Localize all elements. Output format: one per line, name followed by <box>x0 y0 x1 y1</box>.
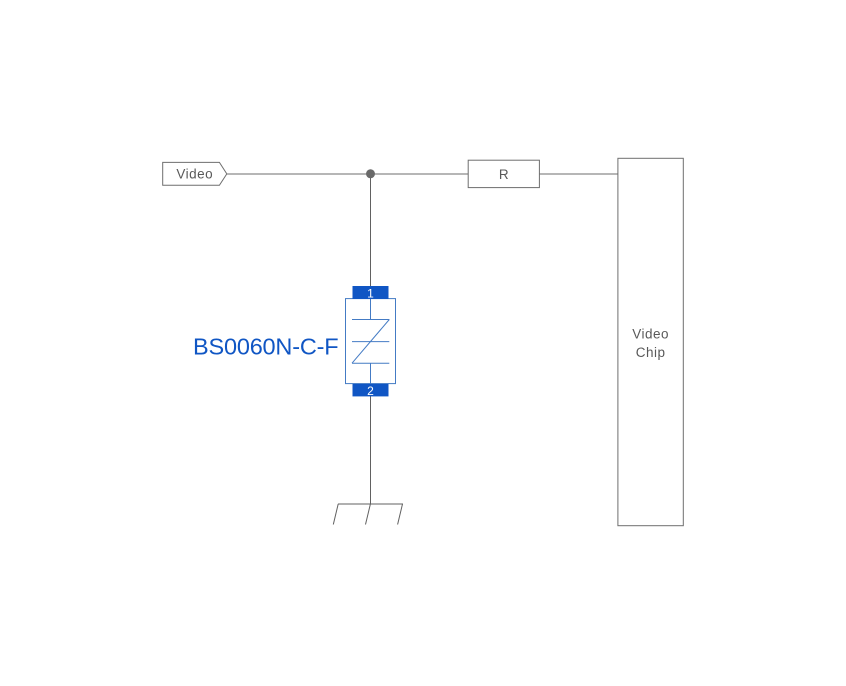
svg-text:2: 2 <box>367 384 374 398</box>
svg-text:Video: Video <box>176 167 213 182</box>
svg-text:1: 1 <box>367 286 374 300</box>
svg-text:BS0060N-C-F: BS0060N-C-F <box>193 334 338 360</box>
svg-text:Video: Video <box>632 327 669 342</box>
svg-text:R: R <box>499 167 509 182</box>
svg-text:Chip: Chip <box>636 345 666 360</box>
